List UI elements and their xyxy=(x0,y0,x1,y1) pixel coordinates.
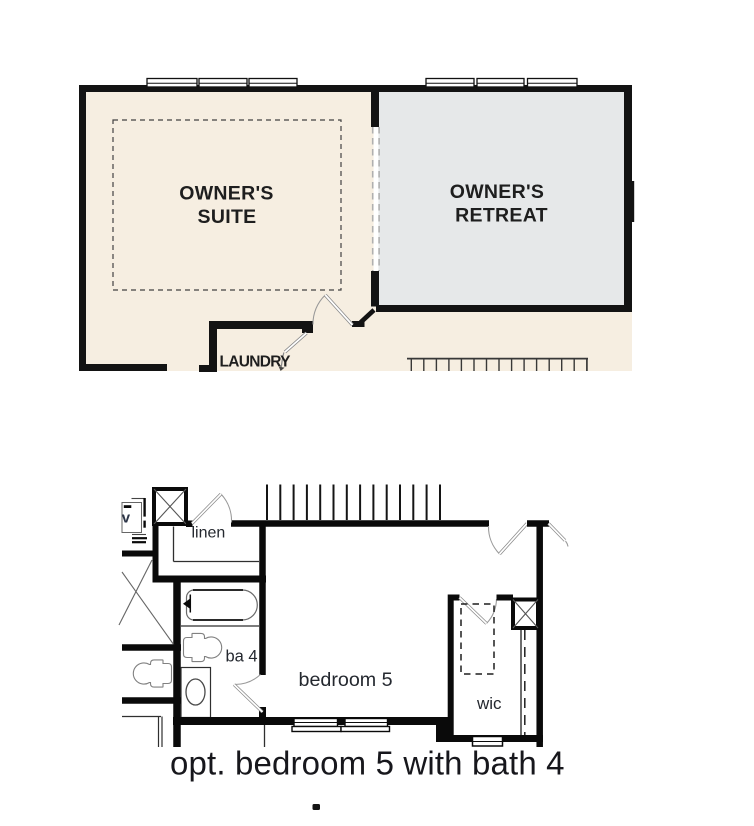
svg-text:linen: linen xyxy=(192,525,226,542)
svg-text:ba 4: ba 4 xyxy=(226,648,258,666)
svg-text:v: v xyxy=(122,510,131,527)
svg-text:RETREAT: RETREAT xyxy=(455,205,548,227)
svg-text:opt. bedroom 5 with bath 4: opt. bedroom 5 with bath 4 xyxy=(170,745,565,782)
svg-text:OWNER'S: OWNER'S xyxy=(179,183,274,205)
svg-text:LAUNDRY: LAUNDRY xyxy=(220,354,292,371)
svg-text:OWNER'S: OWNER'S xyxy=(450,181,545,203)
svg-text:wic: wic xyxy=(476,694,502,713)
svg-text:bedroom 5: bedroom 5 xyxy=(299,669,393,691)
svg-text:SUITE: SUITE xyxy=(198,206,257,228)
